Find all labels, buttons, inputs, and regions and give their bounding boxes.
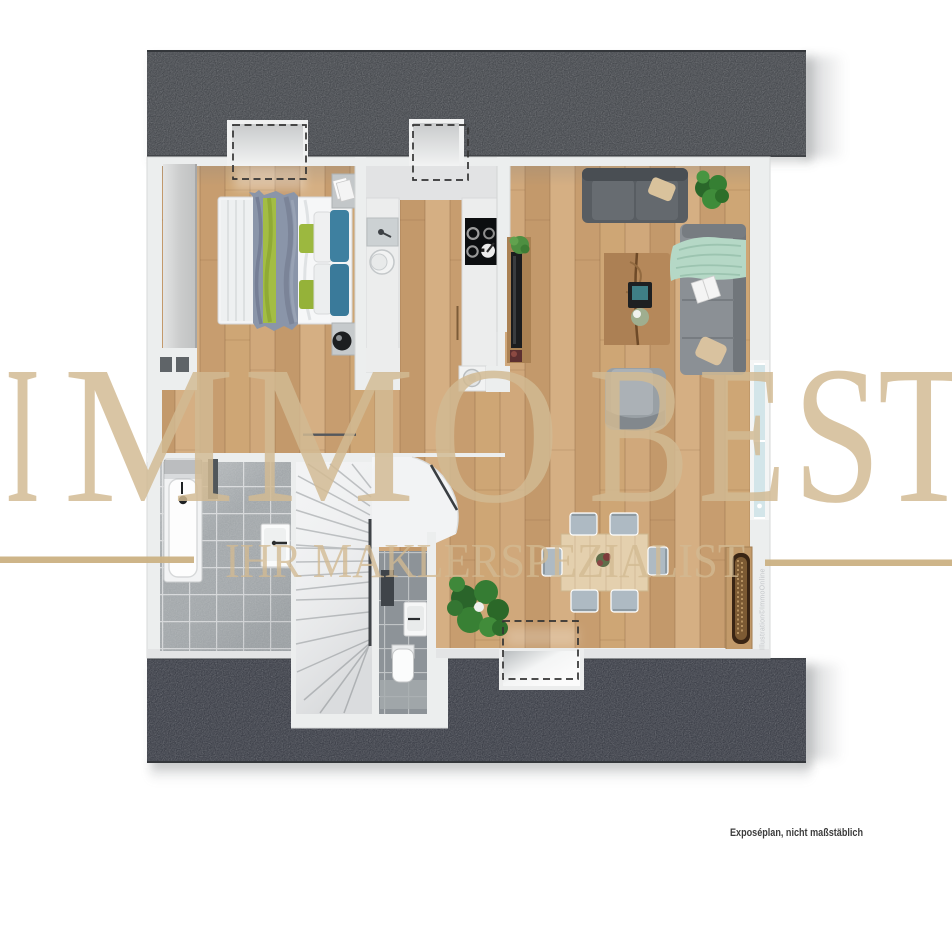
svg-text:E: E	[698, 325, 786, 544]
svg-text:T: T	[878, 325, 952, 544]
svg-text:Exposéplan, nicht maßstäblich: Exposéplan, nicht maßstäblich	[730, 827, 863, 839]
svg-text:M: M	[63, 325, 235, 544]
svg-text:Illustration©ImmoOnline: Illustration©ImmoOnline	[759, 568, 767, 650]
svg-text:M: M	[243, 325, 415, 544]
svg-text:IHR MAKLERSPEZIALIST: IHR MAKLERSPEZIALIST	[225, 533, 745, 588]
svg-text:S: S	[793, 325, 881, 544]
svg-text:B: B	[588, 325, 690, 544]
svg-text:O: O	[428, 325, 560, 544]
svg-text:I: I	[5, 325, 40, 544]
